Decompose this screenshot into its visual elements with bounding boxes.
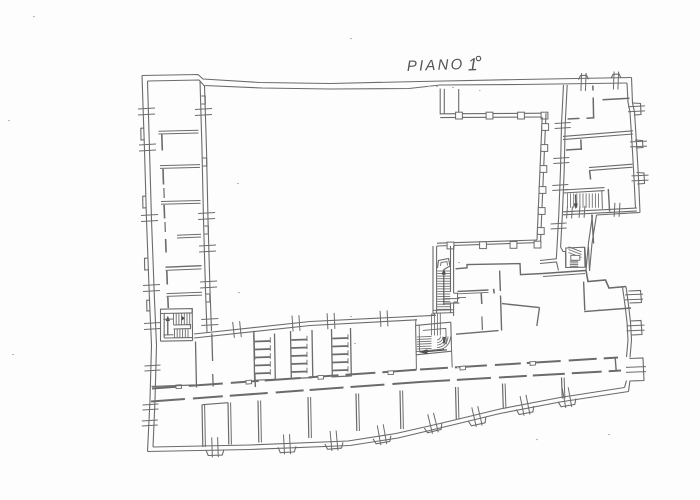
- svg-text:PIANO: PIANO: [407, 56, 465, 75]
